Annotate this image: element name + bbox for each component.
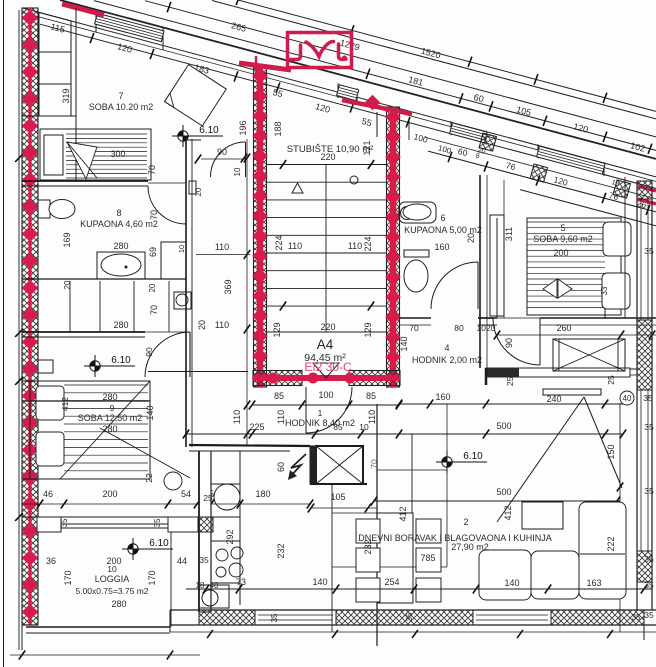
svg-text:369: 369: [223, 279, 233, 294]
svg-text:44: 44: [177, 556, 187, 566]
svg-text:20: 20: [63, 280, 72, 289]
svg-text:LOGGIA: LOGGIA: [95, 574, 130, 584]
svg-text:90: 90: [504, 338, 514, 348]
svg-text:60: 60: [276, 462, 286, 472]
svg-text:140: 140: [504, 578, 519, 588]
svg-text:85: 85: [366, 391, 376, 401]
svg-text:150: 150: [606, 444, 616, 459]
svg-text:20: 20: [197, 320, 207, 330]
svg-text:280: 280: [113, 320, 128, 330]
svg-text:70: 70: [409, 323, 419, 333]
svg-text:311: 311: [504, 227, 514, 241]
svg-text:35: 35: [644, 422, 654, 432]
svg-text:20: 20: [466, 233, 476, 243]
svg-text:2: 2: [463, 517, 468, 527]
svg-text:35: 35: [270, 613, 279, 622]
svg-text:225: 225: [249, 422, 264, 432]
svg-text:500: 500: [496, 421, 511, 431]
svg-text:SOBA 12,50 m2: SOBA 12,50 m2: [78, 413, 143, 423]
svg-text:40: 40: [623, 394, 632, 403]
svg-text:10: 10: [177, 245, 186, 253]
svg-text:250: 250: [505, 372, 515, 386]
svg-text:100: 100: [318, 390, 333, 400]
svg-text:1020: 1020: [477, 323, 496, 333]
svg-text:6.10: 6.10: [111, 355, 131, 366]
svg-text:27,90 m2: 27,90 m2: [451, 542, 489, 552]
svg-text:140: 140: [145, 405, 155, 420]
svg-text:224: 224: [274, 235, 284, 250]
svg-text:22: 22: [144, 473, 154, 483]
svg-text:260: 260: [556, 323, 571, 333]
svg-text:35: 35: [199, 555, 209, 565]
svg-text:54: 54: [181, 489, 191, 499]
svg-text:KUPAONA 4,60 m2: KUPAONA 4,60 m2: [80, 219, 158, 229]
svg-text:220: 220: [320, 152, 335, 162]
svg-text:35: 35: [632, 613, 641, 622]
svg-text:110: 110: [215, 320, 229, 330]
svg-text:240: 240: [546, 394, 561, 404]
svg-text:170: 170: [63, 570, 73, 585]
svg-text:6: 6: [440, 213, 445, 223]
svg-text:160: 160: [435, 392, 450, 402]
svg-text:169: 169: [62, 232, 72, 247]
svg-text:70: 70: [149, 305, 159, 315]
svg-text:20: 20: [194, 187, 203, 196]
svg-text:33: 33: [600, 286, 609, 295]
svg-text:220: 220: [320, 322, 335, 332]
svg-text:35: 35: [644, 580, 654, 590]
svg-text:36: 36: [46, 556, 56, 566]
svg-text:85: 85: [274, 391, 284, 401]
svg-text:35: 35: [405, 612, 414, 621]
svg-text:35: 35: [153, 518, 162, 527]
svg-text:200: 200: [102, 489, 117, 499]
svg-text:70: 70: [149, 210, 159, 220]
svg-text:10: 10: [233, 167, 242, 176]
svg-text:35: 35: [644, 486, 654, 496]
svg-text:SOBA 10.20 m2: SOBA 10.20 m2: [89, 102, 154, 112]
svg-text:6.10: 6.10: [149, 538, 169, 549]
svg-text:7: 7: [118, 91, 123, 101]
svg-text:46: 46: [43, 489, 53, 499]
svg-text:163: 163: [586, 578, 601, 588]
svg-text:6.10: 6.10: [463, 451, 483, 462]
svg-text:412: 412: [60, 397, 70, 411]
svg-text:140: 140: [399, 336, 409, 351]
svg-text:160: 160: [434, 242, 449, 252]
svg-text:35: 35: [644, 610, 654, 620]
svg-text:35: 35: [644, 554, 654, 564]
svg-text:232: 232: [276, 543, 286, 558]
svg-text:319: 319: [61, 88, 71, 103]
svg-text:140: 140: [312, 577, 327, 587]
svg-text:224: 224: [363, 236, 373, 251]
svg-text:129: 129: [272, 322, 282, 337]
svg-text:500: 500: [496, 487, 511, 497]
svg-text:8: 8: [116, 208, 121, 218]
svg-text:A4: A4: [317, 337, 334, 352]
svg-text:110: 110: [276, 410, 286, 424]
svg-text:412: 412: [398, 506, 408, 521]
svg-text:105: 105: [330, 492, 345, 502]
svg-text:170: 170: [147, 570, 157, 585]
svg-text:292: 292: [225, 529, 235, 544]
svg-text:HODNIK 2,00 m2: HODNIK 2,00 m2: [412, 355, 482, 365]
svg-text:4: 4: [444, 343, 449, 353]
svg-text:200: 200: [106, 556, 121, 566]
svg-text:280: 280: [111, 599, 126, 609]
svg-text:300: 300: [110, 149, 125, 159]
svg-text:110: 110: [215, 242, 229, 252]
svg-text:25: 25: [203, 493, 213, 503]
svg-text:5.00x0.75=3.75 m2: 5.00x0.75=3.75 m2: [75, 586, 148, 596]
svg-text:785: 785: [420, 553, 435, 563]
svg-text:200: 200: [553, 248, 568, 258]
svg-text:35: 35: [60, 518, 69, 527]
svg-text:254: 254: [384, 577, 399, 587]
svg-text:25: 25: [606, 375, 616, 385]
svg-text:232: 232: [363, 539, 373, 554]
svg-text:80: 80: [454, 323, 464, 333]
svg-text:129: 129: [363, 322, 373, 337]
svg-text:110: 110: [288, 241, 302, 251]
svg-text:5: 5: [560, 223, 565, 233]
svg-text:90: 90: [217, 147, 227, 157]
svg-text:20: 20: [148, 283, 157, 292]
svg-text:1: 1: [318, 408, 323, 418]
svg-text:SOBA 9,60 m2: SOBA 9,60 m2: [533, 234, 593, 244]
svg-text:HODNIK 8,40 m2: HODNIK 8,40 m2: [285, 418, 355, 428]
svg-text:9: 9: [110, 403, 115, 413]
svg-text:280: 280: [113, 241, 128, 251]
svg-text:110: 110: [348, 241, 362, 251]
svg-text:18: 18: [196, 581, 205, 590]
svg-text:110: 110: [232, 410, 242, 424]
svg-text:40: 40: [210, 581, 219, 590]
svg-text:280: 280: [102, 424, 117, 434]
svg-text:73: 73: [236, 577, 246, 587]
svg-text:6.10: 6.10: [199, 125, 219, 136]
svg-text:412: 412: [503, 505, 513, 520]
svg-text:69: 69: [148, 247, 158, 257]
svg-text:70: 70: [147, 165, 157, 175]
svg-text:196: 196: [238, 120, 248, 135]
svg-text:90: 90: [144, 347, 154, 357]
svg-text:188: 188: [273, 121, 283, 136]
svg-text:180: 180: [255, 489, 270, 499]
svg-text:EI2 30-C: EI2 30-C: [304, 360, 352, 374]
svg-text:222: 222: [606, 536, 616, 551]
